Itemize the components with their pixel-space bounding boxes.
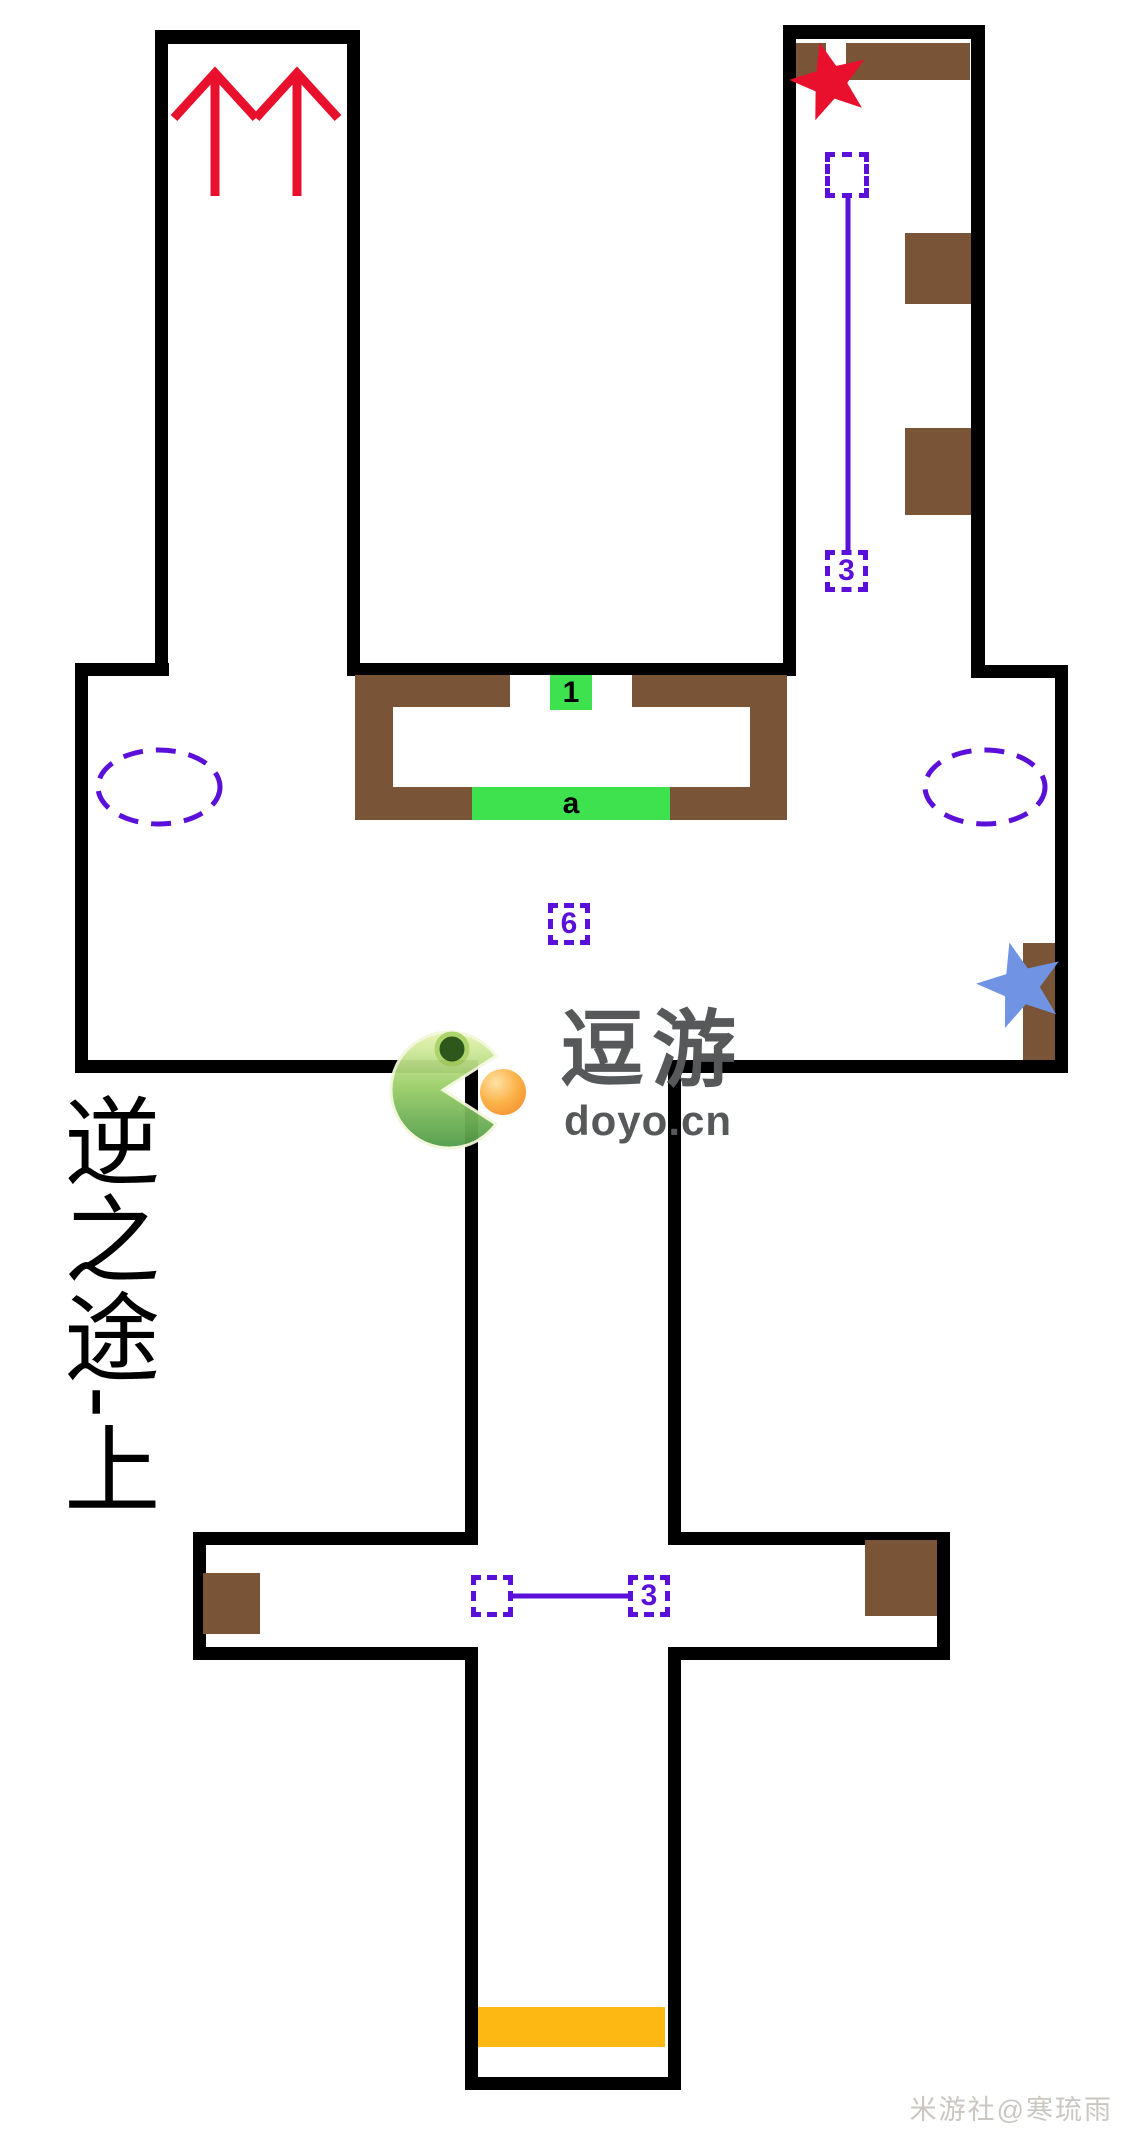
patrol-ellipse-marker (925, 750, 1045, 824)
platform-block (905, 233, 971, 304)
map-wall (193, 1532, 478, 1545)
map-wall (668, 1647, 950, 1660)
teleport-box-marker: 3 (628, 1575, 670, 1617)
map-wall (155, 30, 360, 44)
platform-block (203, 1573, 260, 1634)
platform-block (796, 43, 826, 80)
teleport-box-marker: 6 (548, 903, 590, 945)
map-wall (193, 1647, 478, 1660)
map-wall (971, 665, 1068, 678)
entry-arrow-icon (174, 73, 256, 196)
platform-block (846, 43, 970, 80)
map-cutout (393, 707, 750, 787)
map-cutout (510, 675, 550, 708)
doyo-logo-pacman-icon (391, 1032, 526, 1148)
game-map-canvas: 1a363 逆之途-上 逗游 doyo.cn 米游社@寒琉雨 (0, 0, 1121, 2144)
map-wall (668, 1647, 681, 2090)
orange-zone-marker (478, 2007, 665, 2047)
map-wall (465, 1647, 478, 2090)
map-wall (465, 2077, 681, 2090)
author-watermark: 米游社@寒琉雨 (910, 2088, 1113, 2127)
map-wall (75, 663, 88, 1073)
patrol-ellipse-marker (98, 750, 220, 824)
green-zone-marker: 1 (550, 675, 592, 710)
teleport-box-marker: 3 (825, 550, 868, 592)
map-wall (75, 1060, 478, 1073)
teleport-box-marker (825, 152, 869, 198)
map-wall (937, 1532, 950, 1660)
doyo-logo-domain: doyo.cn (564, 1100, 732, 1142)
teleport-box-marker (471, 1575, 513, 1617)
map-wall (1055, 665, 1068, 1073)
entry-arrow-icon (256, 73, 338, 196)
map-wall (75, 663, 169, 676)
platform-block (1023, 943, 1055, 1060)
map-wall (347, 30, 360, 676)
map-wall (783, 25, 985, 39)
map-wall (465, 1060, 478, 1545)
map-wall (971, 25, 985, 678)
platform-block (905, 428, 971, 515)
region-title-label: 逆之途-上 (52, 1092, 153, 1518)
platform-block (865, 1540, 937, 1616)
doyo-logo-title: 逗游 (560, 1008, 744, 1092)
green-zone-marker: a (472, 787, 670, 820)
map-cutout (592, 675, 632, 708)
map-wall (155, 30, 168, 675)
map-wall (783, 25, 796, 676)
